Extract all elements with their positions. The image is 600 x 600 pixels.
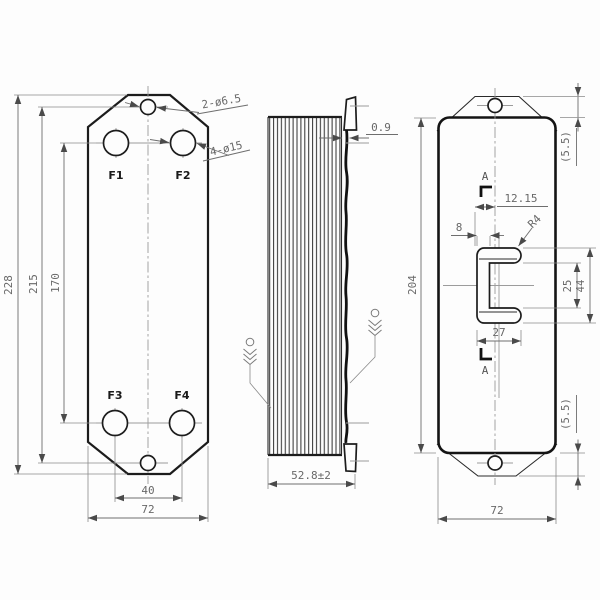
engineering-drawing: F1 F2 F3 F4 228 215 170 40 72	[0, 0, 600, 600]
dim-boss-outer-height-text: 44	[575, 280, 587, 293]
section-letter-top: A	[482, 170, 489, 183]
dim-front-width-text: 72	[141, 503, 154, 516]
dim-mount-hole-pitch: 215	[27, 107, 42, 463]
port-label-f1: F1	[108, 169, 123, 182]
dim-tab-bottom-text: (5.5)	[560, 398, 572, 430]
callout-ports: 4-ø15	[150, 139, 250, 161]
dim-web-width-text: 8	[456, 221, 463, 234]
port-f2-hole	[171, 131, 196, 156]
dim-plate-thickness-text: 0.9	[371, 121, 391, 134]
side-view: 0.9 52.8±2	[244, 97, 399, 489]
dim-tab-top-text: (5.5)	[560, 131, 572, 163]
dim-back-height-text: 204	[406, 275, 419, 295]
end-plate-wavy-edge	[346, 130, 348, 443]
dim-tab-top: (5.5)	[560, 83, 578, 166]
braze-symbol-icon	[350, 309, 382, 383]
dim-depth: 52.8±2	[268, 469, 355, 484]
port-label-f3: F3	[107, 389, 122, 402]
dim-port-pitch-horizontal: 40	[115, 484, 182, 498]
port-f1-hole	[104, 131, 129, 156]
dim-boss-outer-height: 44	[575, 248, 590, 323]
section-letter-bottom: A	[482, 364, 489, 377]
dim-front-width: 72	[88, 503, 208, 518]
dim-port-pitch-vertical: 170	[49, 143, 64, 423]
dim-back-width: 72	[438, 504, 556, 519]
callout-mount-holes-text: 2-ø6.5	[201, 92, 242, 112]
dim-overall-height: 228	[2, 95, 18, 474]
front-view: F1 F2 F3 F4 228 215 170 40 72	[2, 86, 250, 522]
dim-back-height: 204	[406, 118, 421, 453]
drawing-sheet: F1 F2 F3 F4 228 215 170 40 72	[0, 0, 600, 600]
dim-boss-width-text: 27	[492, 326, 505, 339]
plate-stack	[268, 117, 342, 455]
back-mount-hole-bottom	[488, 456, 502, 470]
mount-hole-top	[141, 100, 156, 115]
dim-depth-text: 52.8±2	[291, 469, 331, 482]
port-label-f2: F2	[175, 169, 190, 182]
dim-port-pitch-h-text: 40	[141, 484, 154, 497]
back-view: A A 204 12.15 8 R4	[406, 83, 596, 524]
port-label-f4: F4	[174, 389, 190, 402]
dim-overall-height-text: 228	[2, 275, 15, 295]
braze-symbol-icon	[244, 338, 272, 408]
dim-boss-inner-height-text: 25	[562, 280, 574, 293]
port-f4-hole	[170, 411, 195, 436]
end-plate-bottom-tab	[344, 444, 357, 472]
dim-back-width-text: 72	[490, 504, 503, 517]
dim-boss-offset-text: 12.15	[504, 192, 537, 205]
dim-port-pitch-v-text: 170	[49, 273, 62, 293]
mount-hole-bottom	[141, 456, 156, 471]
dim-mount-hole-pitch-text: 215	[27, 274, 40, 294]
back-mount-hole-top	[488, 99, 502, 113]
end-plate-top-tab	[344, 97, 357, 130]
port-f3-hole	[103, 411, 128, 436]
